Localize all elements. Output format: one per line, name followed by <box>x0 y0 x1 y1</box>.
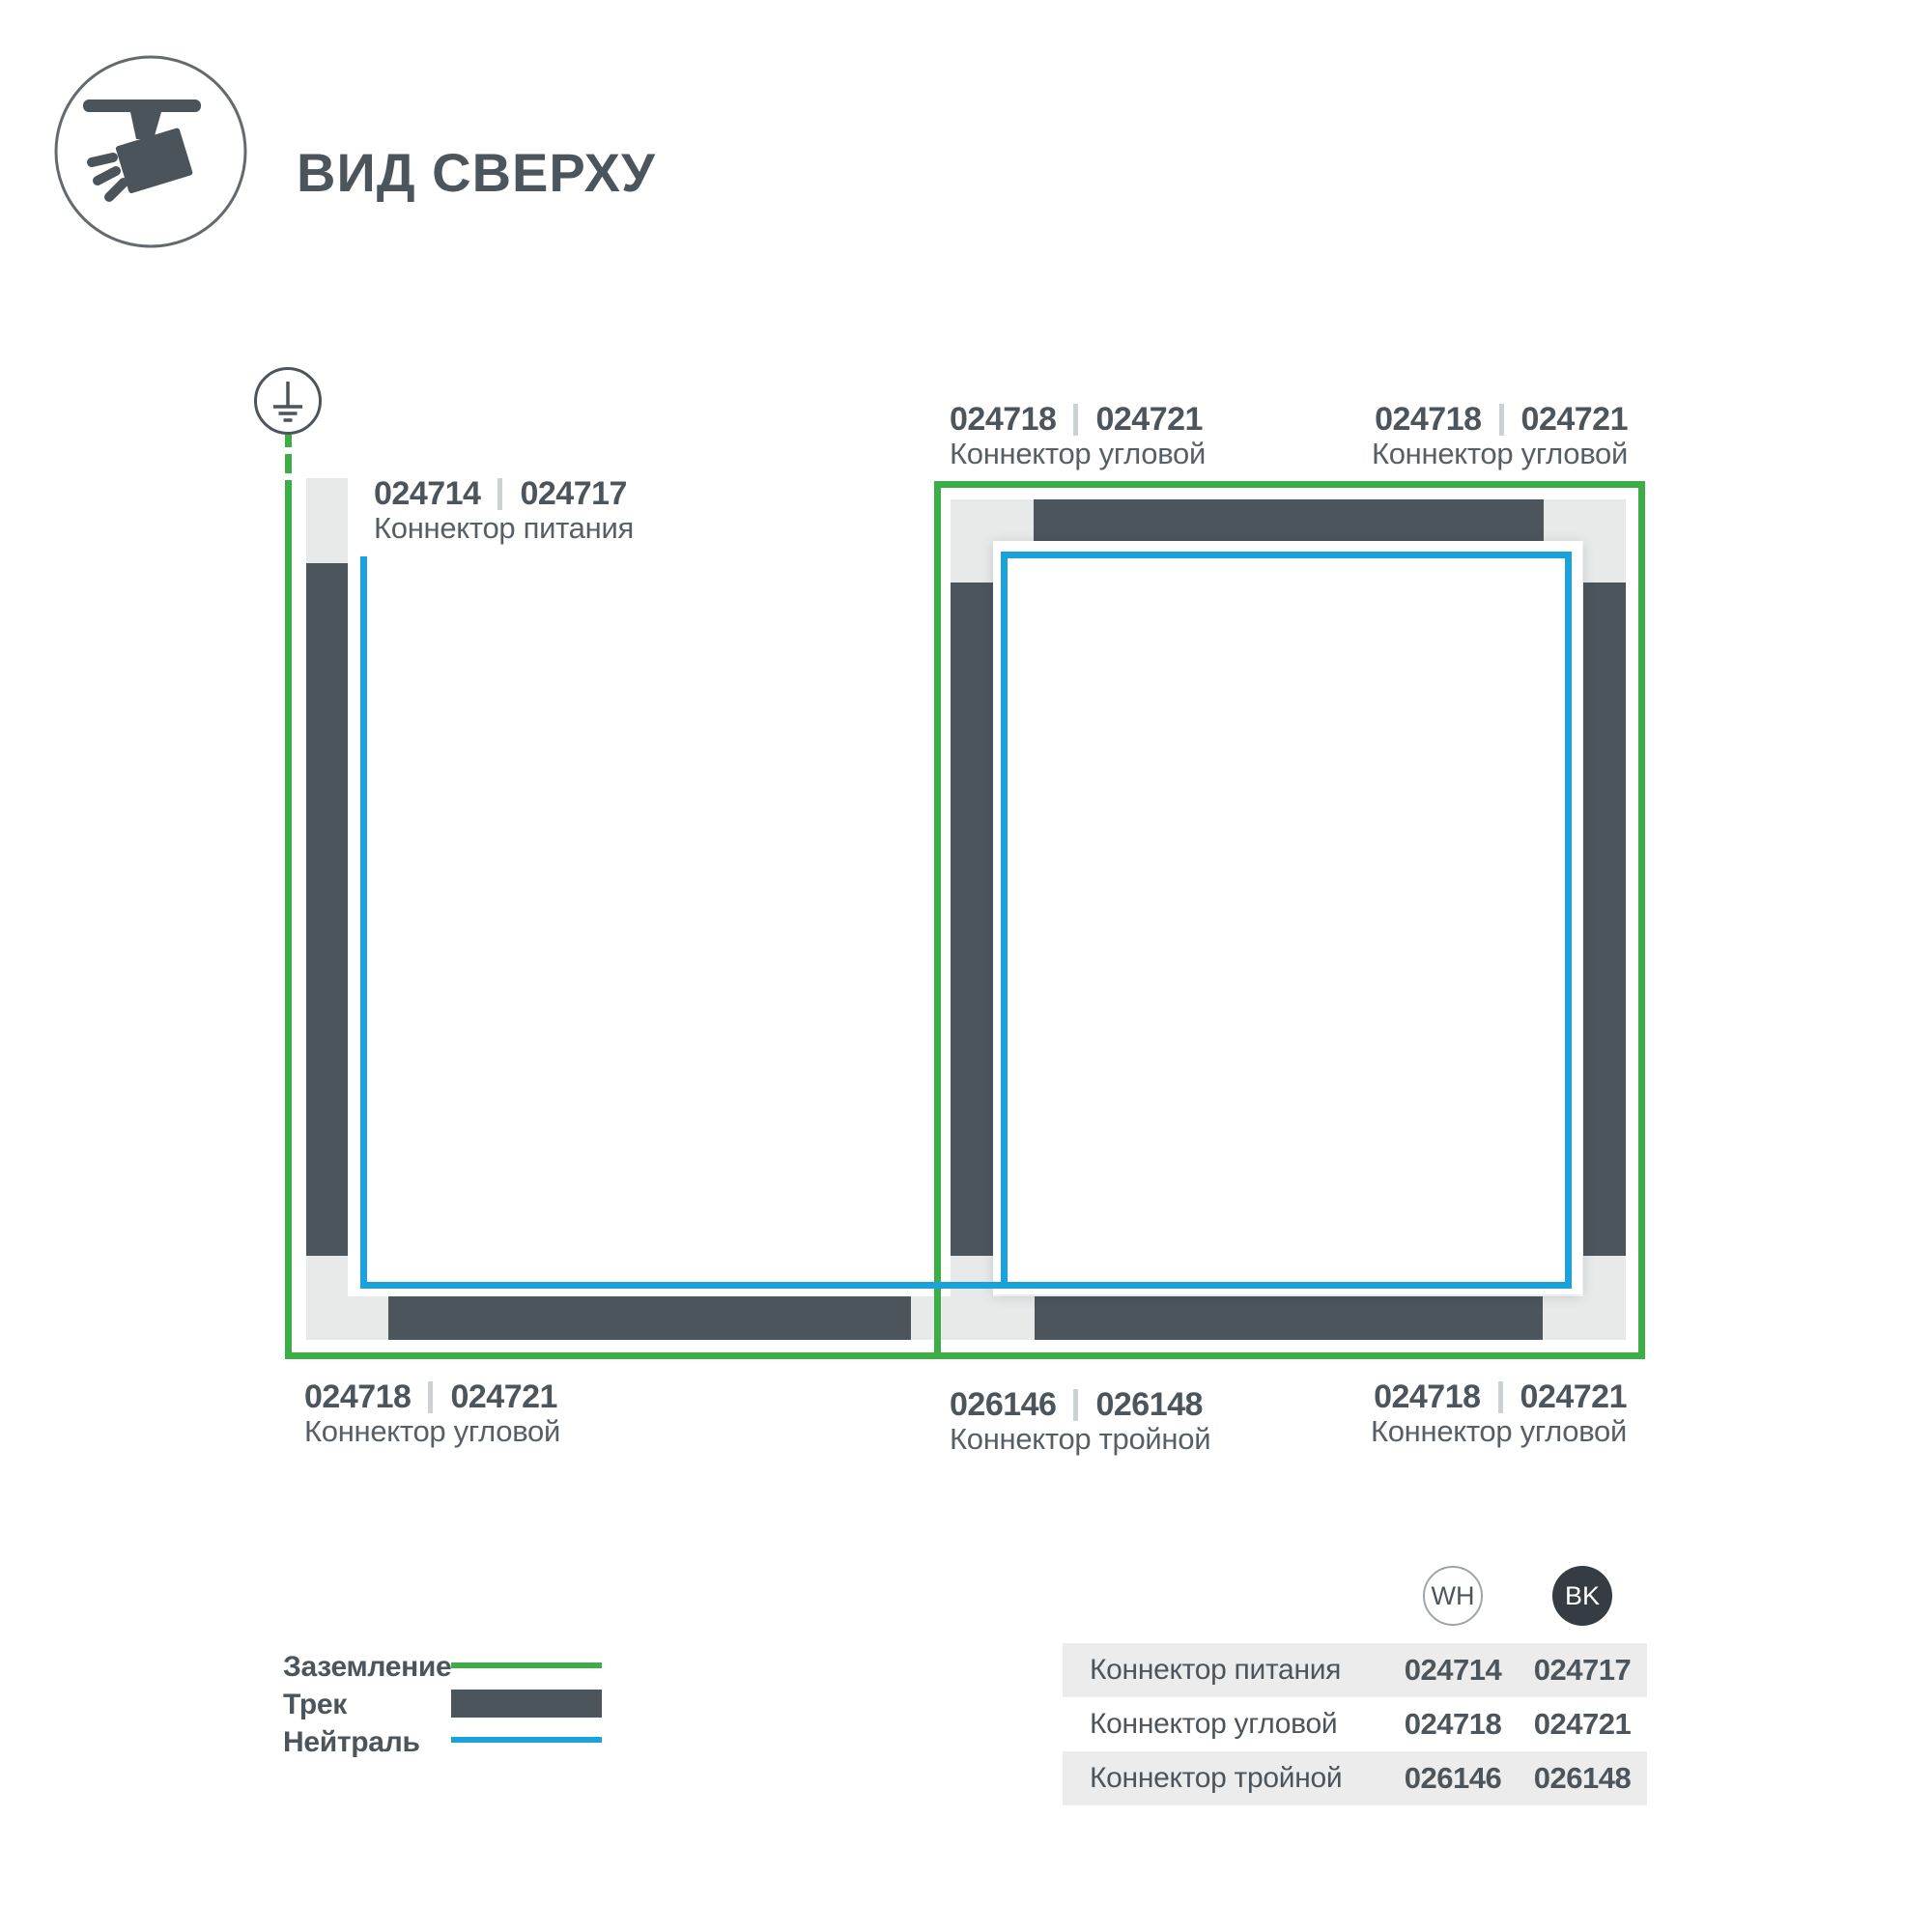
part-code-wh: 024718 <box>1375 403 1481 436</box>
neutral-loop-right <box>1001 552 1572 1289</box>
part-code-bk: 026148 <box>1095 1388 1202 1421</box>
part-label-triple: 026146 026148 Коннектор тройной <box>950 1388 1210 1454</box>
part-name: Коннектор угловой <box>1371 1416 1627 1446</box>
column-badge-wh-label: WH <box>1432 1581 1475 1611</box>
part-label-corner-bottom-right: 024718 024721 Коннектор угловой <box>1371 1380 1627 1446</box>
table-row: Коннектор питания 024714 024717 <box>1063 1643 1647 1697</box>
column-badge-bk-label: BK <box>1565 1581 1600 1611</box>
neutral-line-left-bottom <box>360 1282 1003 1289</box>
part-name: Коннектор тройной <box>950 1424 1210 1454</box>
corner-connector-bottom-left-h <box>348 1296 388 1340</box>
part-code-wh: 024718 <box>1374 1380 1480 1413</box>
row-code-bk: 024721 <box>1505 1697 1660 1751</box>
part-codes: 024718 024721 <box>1371 1380 1627 1413</box>
row-name: Коннектор угловой <box>1090 1697 1337 1751</box>
part-codes: 026146 026148 <box>950 1388 1210 1421</box>
part-codes: 024718 024721 <box>950 403 1206 436</box>
track-light-icon <box>53 54 248 249</box>
legend-track-bar-swatch <box>451 1690 602 1718</box>
column-badge-wh: WH <box>1423 1566 1483 1626</box>
track-segment-left-loop-bottom <box>388 1296 911 1340</box>
row-name: Коннектор питания <box>1090 1643 1341 1697</box>
part-code-bk: 024721 <box>1095 403 1202 436</box>
part-label-corner-top-left: 024718 024721 Коннектор угловой <box>950 403 1206 469</box>
part-label-power: 024714 024717 Коннектор питания <box>374 477 634 543</box>
divider-icon <box>428 1381 433 1413</box>
row-name: Коннектор тройной <box>1090 1751 1342 1805</box>
part-code-bk: 024721 <box>1520 1380 1627 1413</box>
corner-connector-bottom-left-v <box>306 1256 348 1340</box>
legend-label-ground: Заземление <box>283 1651 451 1684</box>
column-badge-bk: BK <box>1552 1566 1612 1626</box>
part-label-corner-top-right: 024718 024721 Коннектор угловой <box>1372 403 1628 469</box>
part-name: Коннектор питания <box>374 513 634 543</box>
row-code-bk: 024717 <box>1505 1643 1660 1697</box>
part-code-bk: 024717 <box>520 477 626 510</box>
neutral-line-left-vertical <box>360 556 367 1289</box>
ground-line-dash-1 <box>285 435 292 447</box>
ground-line-left-vertical <box>285 480 292 1359</box>
page-title: ВИД СВЕРХУ <box>297 141 656 204</box>
part-label-corner-bottom-left: 024718 024721 Коннектор угловой <box>304 1380 560 1446</box>
part-code-wh: 026146 <box>950 1388 1056 1421</box>
power-connector <box>306 478 348 563</box>
divider-icon <box>1499 404 1504 436</box>
part-code-wh: 024714 <box>374 477 480 510</box>
divider-icon <box>1073 1389 1078 1421</box>
divider-icon <box>1498 1381 1503 1413</box>
part-name: Коннектор угловой <box>950 439 1206 469</box>
ground-symbol-icon <box>253 366 323 436</box>
page: ВИД СВЕРХУ 024714 <box>0 0 1932 1932</box>
legend-label-track: Трек <box>283 1689 347 1721</box>
part-codes: 024718 024721 <box>304 1380 560 1413</box>
part-code-wh: 024718 <box>950 403 1056 436</box>
part-codes: 024714 024717 <box>374 477 634 510</box>
part-code-wh: 024718 <box>304 1380 411 1413</box>
table-row: Коннектор угловой 024718 024721 <box>1063 1697 1647 1751</box>
part-code-bk: 024721 <box>1521 403 1628 436</box>
part-code-bk: 024721 <box>450 1380 556 1413</box>
track-segment-left-loop-vertical <box>306 563 348 1256</box>
legend-ground-line-swatch <box>451 1662 602 1668</box>
ground-line-dash-2 <box>285 454 292 473</box>
table-row: Коннектор тройной 026146 026148 <box>1063 1751 1647 1805</box>
divider-icon <box>497 478 502 510</box>
divider-icon <box>1073 404 1078 436</box>
part-codes: 024718 024721 <box>1372 403 1628 436</box>
part-name: Коннектор угловой <box>1372 439 1628 469</box>
row-code-bk: 026148 <box>1505 1751 1660 1805</box>
part-name: Коннектор угловой <box>304 1416 560 1446</box>
legend-neutral-line-swatch <box>451 1737 602 1743</box>
legend-label-neutral: Нейтраль <box>283 1726 420 1759</box>
